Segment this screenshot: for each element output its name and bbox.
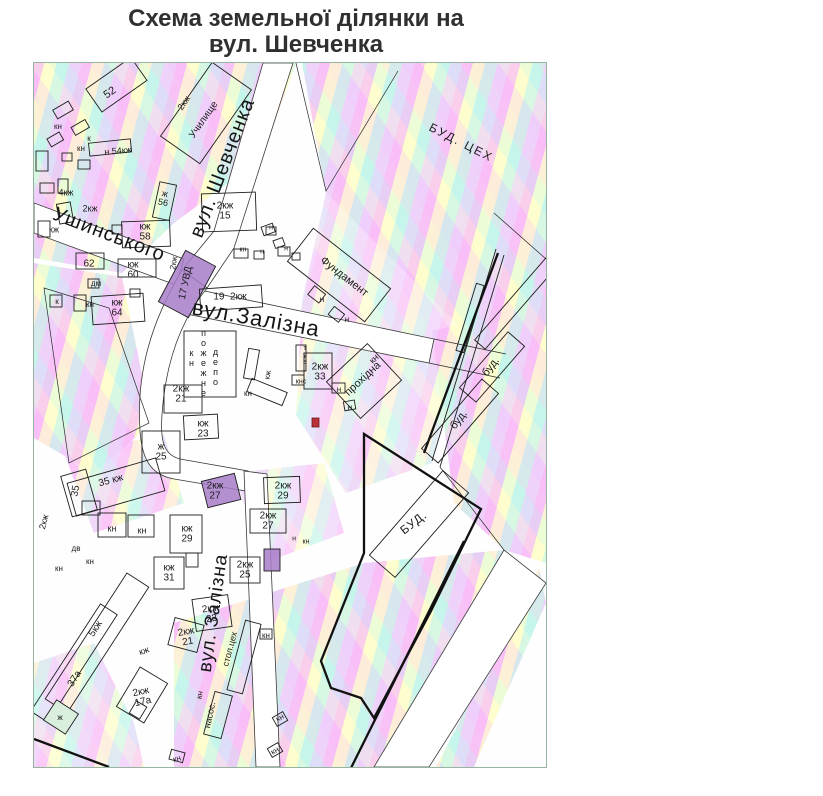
area-label-depot-1: пожежне <box>199 328 208 398</box>
bld-label: кн <box>55 565 63 573</box>
bld-label-31: кж 31 <box>163 564 174 583</box>
bld-label-29b: кж 29 <box>181 525 192 544</box>
bld-label: кн <box>240 248 247 255</box>
page-title-line2: вул. Шевченка <box>128 32 464 58</box>
bld-label-29: 2кж 29 <box>275 482 292 501</box>
road-southeast <box>374 550 546 767</box>
bld-label-27: 2кж 27 <box>207 482 224 501</box>
map-canvas: вул. ШевченкаУшинськоговул.Залізнавул. З… <box>33 62 547 768</box>
bld-label-54: н 54кж <box>104 146 132 157</box>
bld-label: н <box>337 386 341 394</box>
bld-label: н <box>284 247 288 254</box>
bld-label: кн <box>86 558 94 566</box>
bld-label-tuv: тув. <box>302 345 309 373</box>
bld-label: кн <box>195 690 204 699</box>
bld-label: кж <box>263 370 272 380</box>
bld-label: 4кж <box>59 189 74 198</box>
bld-label-23: кж 23 <box>197 420 208 439</box>
bld-label: кнс <box>296 380 306 387</box>
bld-label-27b: 2кж 27 <box>260 512 277 531</box>
area-label-depot-2: депо <box>211 347 220 387</box>
bld-label-35: 35 <box>70 485 81 498</box>
area-label-depot-kn: кн <box>187 348 196 368</box>
bld-label: кн <box>54 123 62 131</box>
bld-label-21b: 2кж 21 <box>177 626 197 648</box>
bld-label-23b: 2кж 23 <box>201 603 220 624</box>
page-title-line1: Схема земельної ділянки на <box>128 6 464 32</box>
bld-label-60: кж 60 <box>127 261 138 280</box>
plot-marker <box>312 418 319 427</box>
bld-label-64: кж 64 <box>111 299 122 318</box>
bld-label: кн <box>86 301 94 309</box>
bld-label: н <box>320 296 324 304</box>
bld-label: кн <box>172 754 182 763</box>
bld-label: кн <box>108 525 117 534</box>
bld-label: кн <box>77 145 85 153</box>
bld-label: кж <box>49 226 59 235</box>
bld-label-17a: 2кж 17а <box>132 686 152 708</box>
bld-label-21: 2кж 21 <box>173 385 190 404</box>
bld-label: кн <box>244 390 252 398</box>
bld-label: н <box>292 537 296 544</box>
bld-label-25: ж 25 <box>155 443 166 462</box>
bld-label: н <box>348 404 352 412</box>
bld-label: н <box>260 250 264 257</box>
bld-label: кн <box>138 527 147 536</box>
bld-label-33: 2кж 33 <box>312 363 329 382</box>
bld-label-25b: 2кж 25 <box>237 561 254 580</box>
bld-label-62: 62 <box>83 259 94 269</box>
bld-label: к <box>55 298 59 306</box>
bld-label: н <box>345 316 349 324</box>
bld-label: кн <box>303 540 310 547</box>
bld-label: к <box>87 135 91 143</box>
bld-label: дв <box>72 545 81 553</box>
bld-label: дм <box>91 280 101 288</box>
bld-label-19: 19 2кж <box>213 292 246 302</box>
page-title: Схема земельної ділянки на вул. Шевченка <box>128 6 464 59</box>
bld-label-15: 2кж 15 <box>217 202 234 221</box>
bld-label: ж <box>57 714 62 722</box>
bld-label: 2кж <box>83 205 98 214</box>
bld-label: н <box>269 226 273 233</box>
bld-label: кн <box>262 632 270 640</box>
page: Схема земельної ділянки на вул. Шевченка <box>0 0 823 796</box>
bld-label-58: кж 58 <box>139 223 150 242</box>
